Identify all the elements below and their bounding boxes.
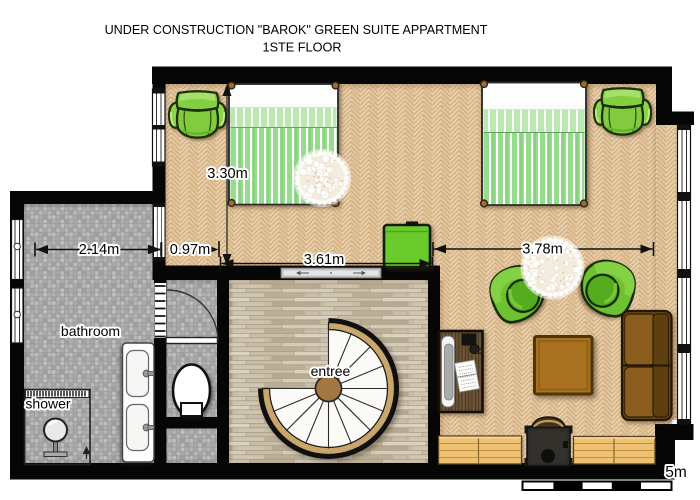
svg-text:shower: shower xyxy=(25,396,70,412)
svg-text:entree: entree xyxy=(311,363,351,379)
svg-text:1STE FLOOR: 1STE FLOOR xyxy=(263,41,342,55)
svg-text:0.97m: 0.97m xyxy=(170,242,211,258)
svg-text:3.30m: 3.30m xyxy=(207,166,248,182)
svg-text:5m: 5m xyxy=(665,464,687,481)
svg-text:3.78m: 3.78m xyxy=(522,242,563,258)
svg-text:3.61m: 3.61m xyxy=(304,252,345,268)
svg-text:2.14m: 2.14m xyxy=(79,242,120,258)
svg-text:bathroom: bathroom xyxy=(61,323,120,339)
svg-text:UNDER CONSTRUCTION "BAROK" GRE: UNDER CONSTRUCTION "BAROK" GREEN SUITE A… xyxy=(105,23,488,37)
